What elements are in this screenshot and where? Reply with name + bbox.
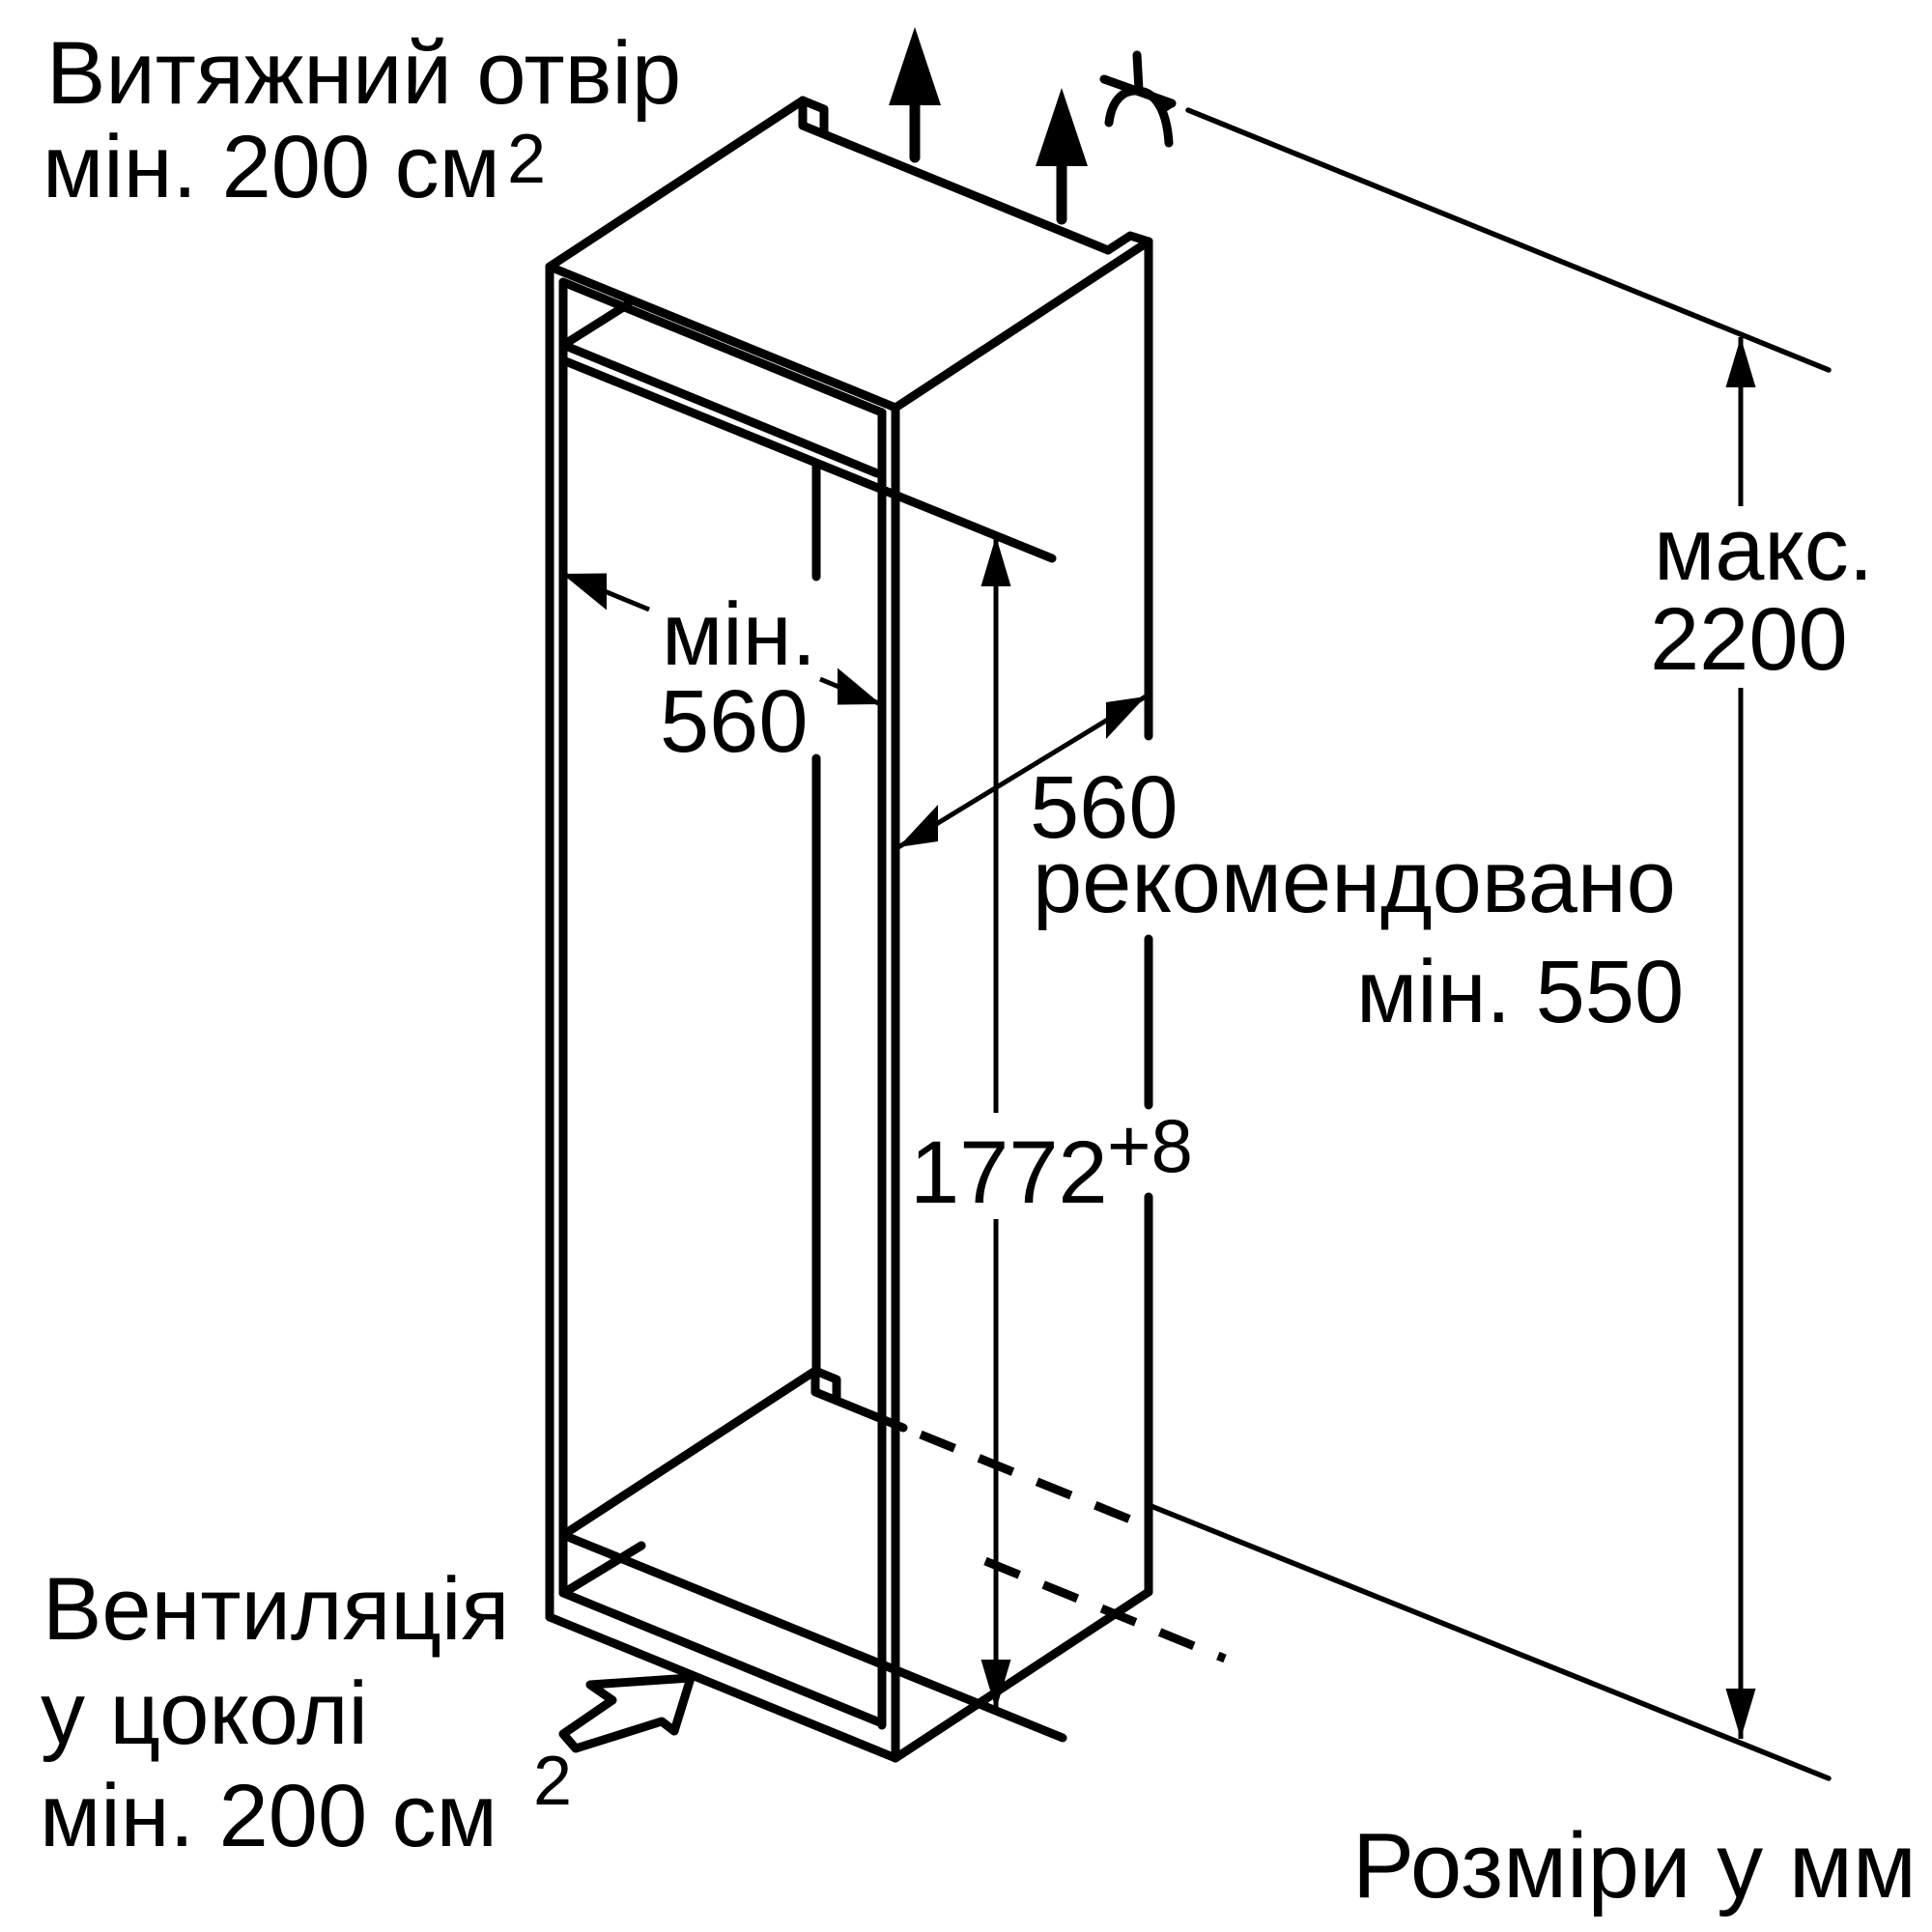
svg-text:1772: 1772 — [910, 1123, 1108, 1222]
svg-text:мін. 200 см: мін. 200 см — [40, 1767, 497, 1865]
svg-text:Розміри у мм: Розміри у мм — [1352, 1814, 1917, 1918]
svg-text:мін. 200 см: мін. 200 см — [43, 118, 500, 216]
svg-text:Вентиляція: Вентиляція — [43, 1560, 509, 1659]
svg-text:мін. 550: мін. 550 — [1356, 943, 1684, 1041]
svg-text:Витяжний отвір: Витяжний отвір — [46, 24, 681, 123]
svg-text:560: 560 — [660, 672, 809, 771]
svg-text:макс.: макс. — [1654, 500, 1873, 599]
svg-text:2200: 2200 — [1650, 590, 1848, 689]
svg-text:рекомендовано: рекомендовано — [1033, 833, 1676, 931]
svg-text:2: 2 — [533, 1743, 572, 1820]
svg-text:мін.: мін. — [662, 585, 816, 684]
svg-text:у цоколі: у цоколі — [41, 1664, 368, 1763]
svg-text:+8: +8 — [1107, 1103, 1193, 1188]
svg-text:2: 2 — [507, 121, 546, 198]
